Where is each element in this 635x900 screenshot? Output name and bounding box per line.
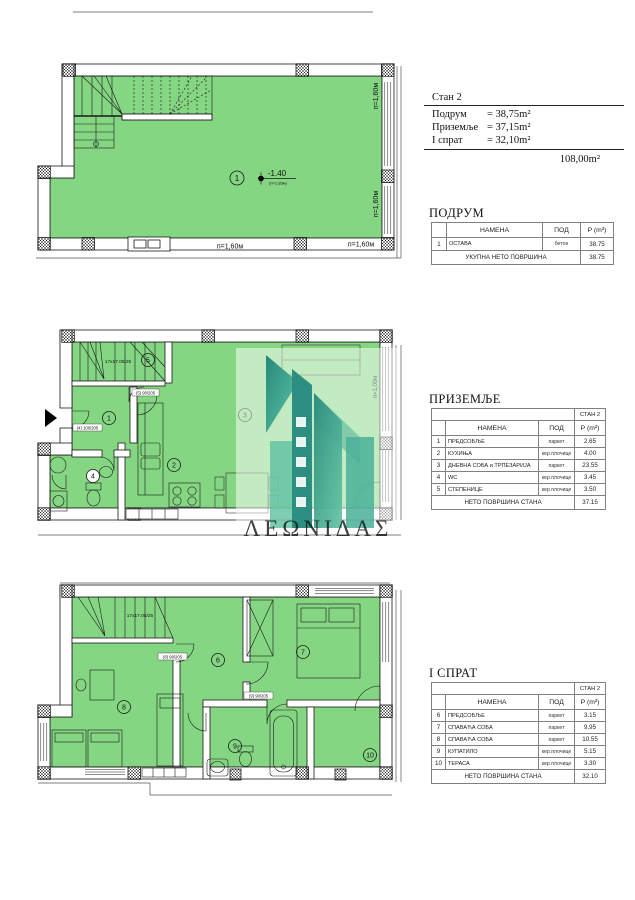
empty-cell — [432, 409, 575, 421]
cell-name: ПРЕДСОБЉЕ — [446, 710, 539, 722]
footer-value: 38.75 — [581, 251, 614, 265]
svg-text:2: 2 — [172, 463, 176, 470]
door-label-bath: (9) 90/205 — [244, 692, 273, 699]
column-header-name: НАМЕНА — [446, 421, 539, 436]
first-floor-table: СТАН 2 НАМЕНА ПОД P (m²) 6ПРЕДСОБЉЕпарке… — [431, 682, 606, 784]
table-stan-row: СТАН 2 — [432, 409, 606, 421]
footer-value: 37.15 — [575, 496, 606, 510]
cell-name: КУПАТИЛО — [446, 746, 539, 758]
summary-total: 108,00m² — [424, 150, 624, 166]
table-row: 1ПРЕДСОБЉЕпаркет2.65 — [432, 436, 606, 448]
cell-name: СПАВАЋА СОБА — [446, 722, 539, 734]
table-row: 4WCкер.плочице3.45 — [432, 472, 606, 484]
svg-text:(9) 90/205: (9) 90/205 — [249, 694, 269, 699]
floor-area — [50, 597, 380, 767]
cell-name: ТЕРАСА — [446, 758, 539, 770]
entry-door-detail — [128, 237, 170, 251]
summary-row: Подрум = 38,75m² — [432, 108, 624, 121]
summary-value: = 32,10m² — [487, 134, 531, 147]
column-header-floor: ПОД — [539, 421, 575, 436]
footer-label: НЕТО ПОВРШИНА СТАНА — [432, 496, 575, 510]
summary-block: Стан 2 Подрум = 38,75m² Приземље = 37,15… — [424, 92, 624, 166]
table-row: 10ТЕРАСАкер.плочице3.30 — [432, 758, 606, 770]
footer-label: УКУПНА НЕТО ПОВРШИНА — [432, 251, 581, 265]
table-row: 7СПАВАЋА СОБАпаркет9.95 — [432, 722, 606, 734]
svg-text:(5) 90/205: (5) 90/205 — [136, 391, 156, 396]
table-row: 5СТЕПЕНИЦЕкер.плочице3.50 — [432, 484, 606, 496]
cell-num: 3 — [432, 460, 446, 472]
svg-text:-1.40: -1.40 — [268, 169, 287, 178]
svg-text:п=1,60м: п=1,60м — [217, 244, 244, 251]
door-label-entry: (4) 100/205 — [73, 424, 102, 431]
ground-floor-drawing: 17x17.05/25 (4) 100/205 (5) 90/205 — [30, 325, 415, 570]
first-floor-table-title: I СПРАТ — [429, 666, 477, 681]
summary-label: Приземље — [432, 121, 487, 134]
cell-floor: паркет — [539, 722, 575, 734]
svg-text:9: 9 — [233, 744, 237, 751]
cell-area: 2.65 — [575, 436, 606, 448]
basement-plan-drawing: 1 -1.40 (h=2,85м) п=1,60м п=1,60м п=1,60… — [30, 8, 405, 278]
cell-area: 10.55 — [575, 734, 606, 746]
stan-label: СТАН 2 — [575, 409, 606, 421]
cell-name: ДНЕВНА СОБА и ТРПЕЗАРИЈА — [446, 460, 539, 472]
cell-num: 6 — [432, 710, 446, 722]
cell-num: 2 — [432, 448, 446, 460]
summary-value: = 37,15m² — [487, 121, 531, 134]
floor-area — [50, 76, 382, 238]
column-header-area: P (m²) — [581, 223, 614, 238]
cell-num: 4 — [432, 472, 446, 484]
table-row: 3ДНЕВНА СОБА и ТРПЕЗАРИЈАпаркет23.55 — [432, 460, 606, 472]
footer-value: 32.10 — [575, 770, 606, 784]
cell-area: 3.45 — [575, 472, 606, 484]
cell-num: 8 — [432, 734, 446, 746]
svg-text:7: 7 — [301, 650, 305, 657]
door-label-room8: (8) 90/205 — [158, 653, 187, 660]
svg-text:6: 6 — [216, 658, 220, 665]
svg-text:п=1,60м: п=1,60м — [373, 191, 380, 218]
svg-text:(8) 90/205: (8) 90/205 — [163, 655, 183, 660]
basement-table-title: ПОДРУМ — [429, 206, 484, 221]
first-floor-plan: 17x17.05/25 (8) 90/205 (9) 90/205 6 7 — [30, 582, 415, 807]
table-footer-row: НЕТО ПОВРШИНА СТАНА 32.10 — [432, 770, 606, 784]
cell-area: 3.15 — [575, 710, 606, 722]
cell-name: СТЕПЕНИЦЕ — [446, 484, 539, 496]
svg-text:п=1,60м: п=1,60м — [373, 83, 380, 110]
summary-row: Приземље = 37,15m² — [432, 121, 624, 134]
cell-floor: кер.плочице — [539, 484, 575, 496]
cell-floor: паркет — [539, 436, 575, 448]
cell-area: 3.30 — [575, 758, 606, 770]
cell-floor: кер.плочице — [539, 758, 575, 770]
summary-title: Стан 2 — [432, 92, 624, 103]
stairs-label: 17x17.05/25 — [127, 613, 154, 619]
cell-floor: бетон — [543, 238, 581, 251]
svg-text:1: 1 — [235, 174, 240, 183]
column-header-name: НАМЕНА — [447, 223, 543, 238]
ground-floor-plan: 17x17.05/25 (4) 100/205 (5) 90/205 — [30, 325, 415, 570]
cell-floor: паркет — [539, 460, 575, 472]
cell-name: ПРЕДСОБЉЕ — [446, 436, 539, 448]
cell-num: 5 — [432, 484, 446, 496]
cell-area: 3.50 — [575, 484, 606, 496]
cell-name: ОСТАВА — [447, 238, 543, 251]
cell-floor: паркет — [539, 710, 575, 722]
svg-text:(h=2,85м): (h=2,85м) — [269, 181, 287, 186]
cell-area: 23.55 — [575, 460, 606, 472]
cell-name: WC — [446, 472, 539, 484]
table-stan-row: СТАН 2 — [432, 683, 606, 695]
door-label-stairs: (5) 90/205 — [132, 389, 159, 396]
stairs-label: 17x17.05/25 — [105, 359, 132, 365]
cell-area: 4.00 — [575, 448, 606, 460]
cell-floor: кер.плочице — [539, 746, 575, 758]
column-header-floor: ПОД — [543, 223, 581, 238]
cell-area: 5.15 — [575, 746, 606, 758]
summary-row: I спрат = 32,10m² — [432, 134, 624, 147]
table-header-row: НАМЕНА ПОД P (m²) — [432, 421, 606, 436]
entrance-arrow-icon — [45, 409, 57, 427]
column-header-area: P (m²) — [575, 421, 606, 436]
table-row: 1ОСТАВАбетон38.75 — [432, 238, 614, 251]
first-floor-drawing: 17x17.05/25 (8) 90/205 (9) 90/205 6 7 — [30, 582, 415, 807]
cell-num: 9 — [432, 746, 446, 758]
cell-num: 7 — [432, 722, 446, 734]
empty-cell — [432, 683, 575, 695]
svg-text:1: 1 — [107, 416, 111, 423]
cell-name: КУХИЊА — [446, 448, 539, 460]
cell-floor: кер.плочице — [539, 448, 575, 460]
table-row: 2КУХИЊАкер.плочице4.00 — [432, 448, 606, 460]
cell-name: СПАВАЋА СОБА — [446, 734, 539, 746]
svg-text:4: 4 — [91, 474, 95, 481]
column-header-num — [432, 421, 446, 436]
ground-table-title: ПРИЗЕМЉЕ — [429, 392, 501, 407]
footer-label: НЕТО ПОВРШИНА СТАНА — [432, 770, 575, 784]
column-header-num — [432, 695, 446, 710]
table-row: 9КУПАТИЛОкер.плочице5.15 — [432, 746, 606, 758]
cell-num: 1 — [432, 436, 446, 448]
basement-table: НАМЕНА ПОД P (m²) 1ОСТАВАбетон38.75 УКУП… — [431, 222, 614, 265]
cell-floor: паркет — [539, 734, 575, 746]
watermark: ΛΕΩΝΙΔΑΣ — [236, 348, 398, 541]
cell-num: 1 — [432, 238, 447, 251]
table-footer-row: НЕТО ПОВРШИНА СТАНА 37.15 — [432, 496, 606, 510]
watermark-text: ΛΕΩΝΙΔΑΣ — [244, 516, 393, 541]
cell-floor: кер.плочице — [539, 472, 575, 484]
svg-text:8: 8 — [122, 705, 126, 712]
table-header-row: НАМЕНА ПОД P (m²) — [432, 695, 606, 710]
basement-plan: 1 -1.40 (h=2,85м) п=1,60м п=1,60м п=1,60… — [30, 8, 405, 278]
table-row: 6ПРЕДСОБЉЕпаркет3.15 — [432, 710, 606, 722]
svg-text:5: 5 — [146, 358, 150, 365]
column-header-num — [432, 223, 447, 238]
column-header-area: P (m²) — [575, 695, 606, 710]
column-header-name: НАМЕНА — [446, 695, 539, 710]
cell-num: 10 — [432, 758, 446, 770]
table-footer-row: УКУПНА НЕТО ПОВРШИНА 38.75 — [432, 251, 614, 265]
column-header-floor: ПОД — [539, 695, 575, 710]
summary-value: = 38,75m² — [487, 108, 531, 121]
table-header-row: НАМЕНА ПОД P (m²) — [432, 223, 614, 238]
svg-text:(4) 100/205: (4) 100/205 — [77, 426, 99, 431]
stan-label: СТАН 2 — [575, 683, 606, 695]
svg-text:10: 10 — [366, 753, 374, 760]
svg-text:п=1,60м: п=1,60м — [348, 242, 375, 249]
table-row: 8СПАВАЋА СОБАпаркет10.55 — [432, 734, 606, 746]
summary-label: Подрум — [432, 108, 487, 121]
ground-floor-table: СТАН 2 НАМЕНА ПОД P (m²) 1ПРЕДСОБЉЕпарке… — [431, 408, 606, 510]
cell-area: 9.95 — [575, 722, 606, 734]
summary-label: I спрат — [432, 134, 487, 147]
cell-area: 38.75 — [581, 238, 614, 251]
